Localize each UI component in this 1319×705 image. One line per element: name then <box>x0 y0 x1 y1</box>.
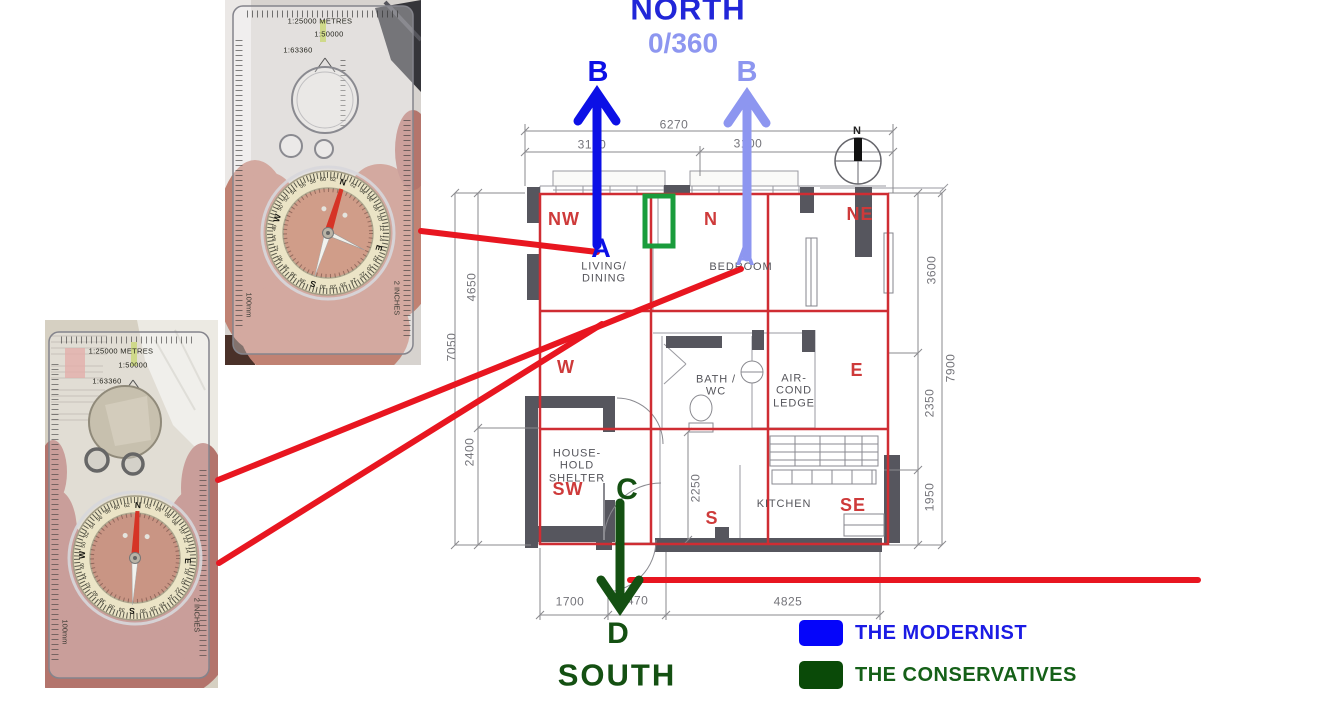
dial-number: 26 <box>158 599 166 607</box>
sector-label-s: S <box>705 508 718 528</box>
dial-number: 62 <box>330 177 337 184</box>
room-label-bath: BATH /WC <box>696 374 736 399</box>
dial-number: 34 <box>118 606 125 613</box>
marker-a-left: A <box>591 233 611 263</box>
dial-number: 54 <box>290 188 299 197</box>
dial-number: 18 <box>371 254 379 262</box>
dial-number: 40 <box>91 589 100 598</box>
dim-left-inner-top: 4650 <box>465 273 478 302</box>
dial-number: 24 <box>166 593 175 602</box>
dial-number: 12 <box>377 225 384 232</box>
green-highlight-box <box>645 196 673 246</box>
sector-label-se: SE <box>840 495 866 515</box>
dial-number: 52 <box>83 531 91 539</box>
room-label-living: LIVING/DINING <box>581 261 626 286</box>
dial-number: 22 <box>357 270 366 279</box>
marker-a-right: A <box>735 241 755 271</box>
dial-number: 22 <box>173 585 181 593</box>
legend-item-conservatives: THE CONSERVATIVES <box>799 661 1077 689</box>
dial-cardinal-letter: W <box>77 551 87 560</box>
dial-number: 18 <box>183 567 190 574</box>
magnifier-lens <box>292 67 358 133</box>
dial-number: 56 <box>95 514 104 523</box>
sector-label-nw: NW <box>548 209 580 229</box>
dial-number: 52 <box>283 195 292 204</box>
screenshot: 1:25000 METRES 1:50000 1:63360 100mm 2 I… <box>0 0 1319 705</box>
dim-left-inner-bottom: 2400 <box>463 438 476 467</box>
compass-photo-bottom-art <box>45 320 218 688</box>
legend-label-conservatives: THE CONSERVATIVES <box>855 664 1077 687</box>
dim-right-inner-bottom: 1950 <box>923 483 936 512</box>
dial-cardinal-letter: W <box>271 212 283 223</box>
dial-number: 42 <box>85 581 93 589</box>
dial-number: 44 <box>81 572 89 580</box>
dial-number: 06 <box>365 195 374 204</box>
legend-item-modernist: THE MODERNIST <box>799 620 1027 646</box>
toilet-icon <box>690 395 712 421</box>
dial-number: 04 <box>357 188 366 197</box>
kitchen-bench <box>770 436 878 484</box>
dim-corridor: 2250 <box>689 474 702 503</box>
dial-number: 12 <box>181 536 189 544</box>
dial-number: 36 <box>108 602 116 610</box>
magnifier-lens <box>89 386 161 458</box>
dial-number: 10 <box>375 214 383 222</box>
window-slots <box>806 233 893 536</box>
dial-number: 02 <box>144 503 151 510</box>
scale-text: 1:25000 METRES <box>288 17 353 26</box>
room-label-aircond: AIR-CONDLEDGE <box>773 373 815 410</box>
dial-number: 60 <box>320 177 327 184</box>
dial-number: 26 <box>339 280 347 288</box>
scale-text: 1:50000 <box>118 361 147 370</box>
dial-number: 50 <box>80 541 87 548</box>
dial-number: 54 <box>88 522 96 530</box>
dim-top-right: 3100 <box>734 137 763 150</box>
compass-dial <box>69 492 201 624</box>
marker-b-left: B <box>588 56 609 88</box>
dim-right-outer: 7900 <box>944 354 957 383</box>
dial-number: 30 <box>319 282 326 289</box>
dial-number: 06 <box>162 511 170 519</box>
dial-cardinal-letter: S <box>129 606 135 616</box>
dim-bottom-mid: 1470 <box>620 594 649 607</box>
scale-text: 1:63360 <box>92 377 121 386</box>
dial-number: 10 <box>176 527 184 535</box>
dial-cardinal-letter: N <box>339 177 348 188</box>
room-label-shelter: HOUSE-HOLDSHELTER <box>549 448 605 485</box>
compass-dial <box>262 167 394 299</box>
dial-number: 08 <box>170 518 179 527</box>
desk-object <box>375 0 421 92</box>
dim-bottom-left: 1700 <box>556 595 585 608</box>
dial-number: 20 <box>179 577 187 585</box>
dial-cardinal-letter: N <box>134 500 141 510</box>
dimension-lines <box>451 124 946 620</box>
dial-number: 20 <box>365 262 374 271</box>
hand <box>225 110 421 365</box>
dial-number: 14 <box>184 547 191 554</box>
marker-d: D <box>607 617 629 651</box>
heading-north: NORTH <box>630 0 745 27</box>
sink-icon <box>741 361 763 383</box>
scale-text: 1:50000 <box>314 30 343 39</box>
arrow-c-down <box>601 503 639 608</box>
dial-number: 36 <box>290 270 299 279</box>
dial-number: 60 <box>113 504 121 512</box>
dial-number: 38 <box>99 596 107 604</box>
scale-text: 1:25000 METRES <box>89 347 154 356</box>
dim-right-inner-mid: 2350 <box>923 389 936 418</box>
dial-number: 04 <box>154 506 162 514</box>
compass-needle <box>119 510 151 605</box>
dial-number: 14 <box>377 235 384 242</box>
ruler-unit-text: 100mm <box>61 619 70 644</box>
red-line-top-compass-to-a <box>421 231 597 252</box>
arrow-b-left <box>578 93 616 245</box>
dial-number: 46 <box>272 224 279 231</box>
dim-left-outer: 7050 <box>445 333 458 362</box>
scale-text: 1:63360 <box>283 46 312 55</box>
ruler-unit-text: 2 INCHES <box>393 281 402 316</box>
compass-photo-bottom: 1:25000 METRES 1:50000 1:63360 100mm 2 I… <box>45 320 218 688</box>
heading-bearing: 0/360 <box>648 27 718 58</box>
dial-number: 28 <box>149 604 157 612</box>
dial-number: 38 <box>283 262 292 271</box>
conservatives-color-swatch <box>799 661 843 689</box>
marker-b-right: B <box>737 56 758 88</box>
dial-number: 56 <box>299 182 307 190</box>
dial-number: 08 <box>371 204 379 212</box>
fixtures <box>604 361 878 592</box>
dial-number: 40 <box>277 254 285 262</box>
heading-south: SOUTH <box>558 659 677 694</box>
dial-number: 42 <box>273 244 281 252</box>
arrow-b-right <box>728 95 766 257</box>
compass-photo-top: 1:25000 METRES 1:50000 1:63360 100mm 2 I… <box>225 0 421 365</box>
dial-number: 24 <box>349 276 357 284</box>
dim-top-total: 6270 <box>660 118 689 131</box>
ruler-unit-text: 100mm <box>245 292 254 317</box>
sector-label-ne: NE <box>846 204 873 224</box>
marker-c: C <box>616 473 638 507</box>
sector-label-w: W <box>557 357 575 377</box>
plan-outline <box>531 171 948 545</box>
modernist-color-swatch <box>799 620 843 646</box>
dial-number: 58 <box>309 178 317 186</box>
dim-bottom-right: 4825 <box>774 595 803 608</box>
dial-number: 28 <box>330 282 337 289</box>
room-label-kitchen: KITCHEN <box>757 498 812 510</box>
sector-label-n: N <box>704 209 718 229</box>
sector-label-e: E <box>850 360 863 380</box>
dial-cardinal-letter: S <box>308 278 316 289</box>
compass-rose-label: N <box>853 125 861 137</box>
dial-cardinal-letter: E <box>183 558 193 564</box>
dim-top-left: 3170 <box>578 138 607 151</box>
dial-number: 30 <box>139 607 146 614</box>
dial-number: 44 <box>272 235 279 242</box>
dial-cardinal-letter: E <box>373 244 384 252</box>
ruler-unit-text: 2 INCHES <box>193 598 202 633</box>
compass-rose-icon <box>835 138 881 184</box>
dial-number: 62 <box>124 502 131 509</box>
dial-number: 46 <box>79 562 86 569</box>
dial-number: 02 <box>349 182 357 190</box>
dial-number: 50 <box>277 204 285 212</box>
compass-needle <box>302 185 355 281</box>
legend-label-modernist: THE MODERNIST <box>855 622 1027 645</box>
dim-right-inner-top: 3600 <box>925 256 938 285</box>
plastic-bag <box>137 320 218 470</box>
dial-number: 34 <box>299 276 307 284</box>
dial-number: 58 <box>104 508 112 516</box>
